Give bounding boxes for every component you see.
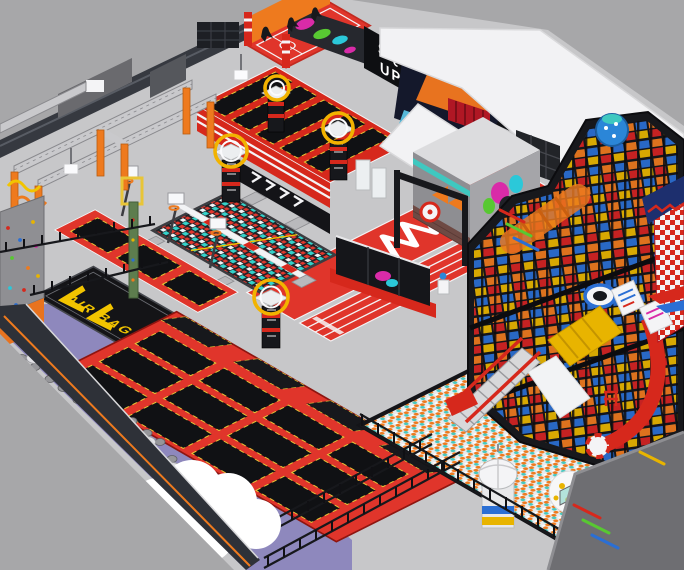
ninja-post [207, 102, 214, 148]
slide-exit-ring [587, 435, 609, 457]
climb-pole [129, 202, 138, 298]
hanging-light [234, 70, 248, 80]
ninja-post [183, 88, 190, 134]
park-overview-svg: SQUAD UP [0, 0, 684, 570]
water-jug-icon [440, 273, 447, 280]
screen-graphic [375, 271, 391, 281]
hanging-light [64, 164, 78, 174]
wall-light-panel [86, 80, 104, 92]
trampoline-park-render: SQUAD UP [0, 0, 684, 570]
ninja-post [97, 130, 104, 176]
cubby-shelf [197, 22, 239, 48]
